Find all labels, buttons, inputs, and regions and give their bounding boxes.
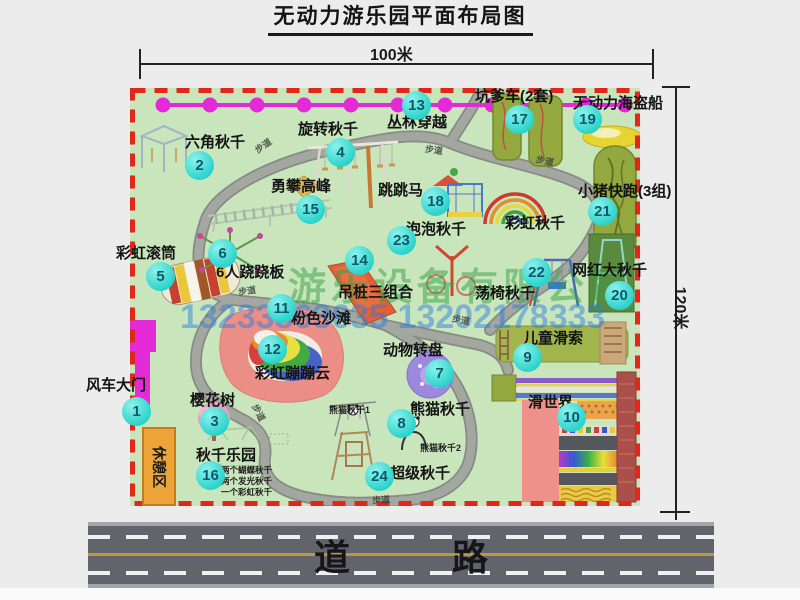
attraction-20-label: 网红大秋千 <box>572 263 647 279</box>
dimension-tick-right-bottom <box>660 511 690 513</box>
panda-swing-2-label: 熊猫秋千2 <box>420 441 461 454</box>
attraction-17-badge: 17 <box>505 105 534 134</box>
attraction-12-label: 彩虹蹦蹦云 <box>255 366 330 382</box>
attraction-12-badge: 12 <box>258 335 287 364</box>
rest-area-box: 休憩区 <box>142 427 176 506</box>
attraction-13-badge: 13 <box>402 91 431 120</box>
attraction-1-badge: 1 <box>122 397 151 426</box>
attraction-8-label: 熊猫秋千 <box>410 402 470 418</box>
attraction-15-badge: 15 <box>296 195 325 224</box>
swing-paradise-note-2: 两个发光秋千 <box>221 476 272 487</box>
attraction-22-badge: 22 <box>522 258 551 287</box>
rainbow-swing-label: 彩虹秋千 <box>505 216 565 232</box>
screenshot-root: { "title": "无动力游乐园平面布局图", "dimensions": … <box>0 0 800 600</box>
dimension-tick-right-top <box>662 86 690 88</box>
hexagon-swing-icon <box>142 126 186 172</box>
attraction-5-badge: 5 <box>146 262 175 291</box>
attraction-18-label: 跳跳马 <box>378 183 423 199</box>
attraction-14-label: 吊桩三组合 <box>338 285 413 301</box>
attraction-4-badge: 4 <box>326 138 355 167</box>
attraction-7-label: 动物转盘 <box>383 343 443 359</box>
attraction-19-badge: 19 <box>573 105 602 134</box>
attraction-9-badge: 9 <box>513 343 542 372</box>
slide-world-icon <box>492 372 636 502</box>
road-label: 道 路 <box>268 529 534 581</box>
walkway-label: 步道 <box>372 492 391 506</box>
attraction-21-label: 小猪快跑(3组) <box>578 184 671 200</box>
attraction-11-label: 粉色沙滩 <box>291 311 351 327</box>
attraction-8-badge: 8 <box>387 409 416 438</box>
dimension-label-right: 120米 <box>670 278 694 338</box>
attraction-20-badge: 20 <box>605 281 634 310</box>
attraction-1-label: 风车大门 <box>86 378 146 394</box>
page-margin-bottom <box>0 588 800 600</box>
panda-swing-1-label: 熊猫秋千1 <box>329 403 370 416</box>
attraction-6-badge: 6 <box>208 239 237 268</box>
swing-paradise-notes: 两个蝴蝶秋千 两个发光秋千 一个彩虹秋千 <box>221 465 272 498</box>
attraction-2-badge: 2 <box>185 151 214 180</box>
dimension-tick-top-left <box>139 49 141 79</box>
attraction-15-label: 勇攀高峰 <box>271 179 331 195</box>
road: 道 路 <box>88 522 714 588</box>
attraction-2-label: 六角秋千 <box>185 135 245 151</box>
title-bar: 无动力游乐园平面布局图 <box>0 0 800 36</box>
attraction-5-label: 彩虹滚筒 <box>116 246 176 262</box>
attraction-10-badge: 10 <box>557 403 586 432</box>
attraction-18-badge: 18 <box>421 187 450 216</box>
attraction-17-label: 坑爹车(2套) <box>475 89 553 105</box>
attraction-24-label: 超级秋千 <box>390 466 450 482</box>
attraction-11-badge: 11 <box>267 294 296 323</box>
attraction-14-badge: 14 <box>345 246 374 275</box>
attraction-7-badge: 7 <box>425 359 454 388</box>
attraction-3-badge: 3 <box>200 407 229 436</box>
page-title: 无动力游乐园平面布局图 <box>268 0 533 36</box>
dimension-tick-top-right <box>652 49 654 79</box>
attraction-16-badge: 16 <box>196 461 225 490</box>
dimension-label-top: 100米 <box>370 41 413 65</box>
walkway-label: 步道 <box>424 142 444 157</box>
attraction-21-badge: 21 <box>588 197 617 226</box>
attraction-22-label: 荡椅秋千 <box>475 286 535 302</box>
attraction-4-label: 旋转秋千 <box>298 122 358 138</box>
attraction-23-badge: 23 <box>387 226 416 255</box>
rest-area-label: 休憩区 <box>149 446 169 488</box>
swing-paradise-note-1: 两个蝴蝶秋千 <box>221 465 272 476</box>
walkway-label: 步道 <box>237 283 257 298</box>
swing-paradise-note-3: 一个彩虹秋千 <box>221 487 272 498</box>
attraction-24-badge: 24 <box>365 462 394 491</box>
